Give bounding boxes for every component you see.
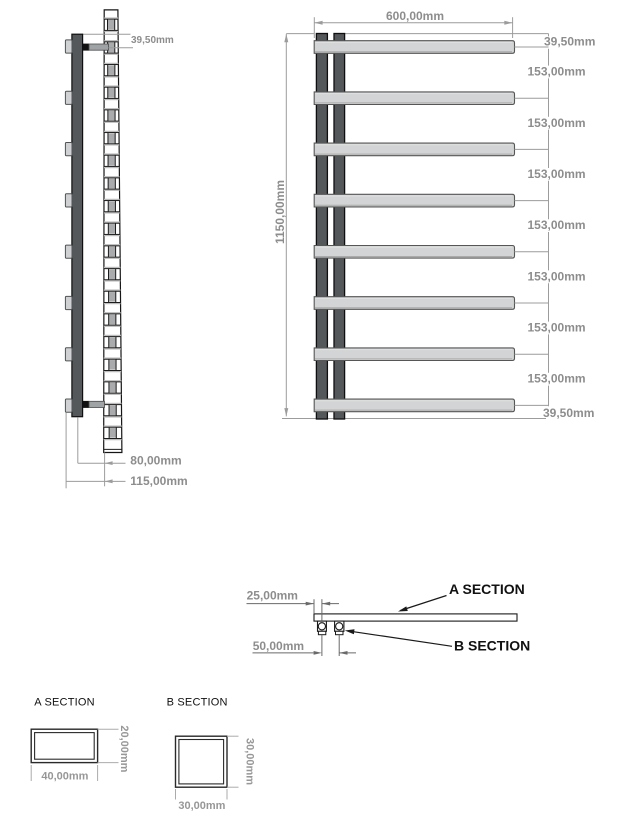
svg-text:153,00mm: 153,00mm (528, 116, 586, 130)
svg-text:39,50mm: 39,50mm (543, 406, 594, 420)
svg-text:153,00mm: 153,00mm (528, 269, 586, 283)
svg-text:39,50mm: 39,50mm (544, 35, 595, 49)
svg-text:30,00mm: 30,00mm (244, 738, 256, 785)
svg-text:153,00mm: 153,00mm (528, 372, 586, 386)
svg-text:153,00mm: 153,00mm (528, 218, 586, 232)
svg-text:A SECTION: A SECTION (34, 696, 94, 708)
svg-text:39,50mm: 39,50mm (131, 35, 174, 46)
svg-text:B SECTION: B SECTION (454, 638, 530, 654)
svg-text:153,00mm: 153,00mm (528, 320, 586, 334)
svg-text:A SECTION: A SECTION (449, 581, 525, 597)
svg-text:80,00mm: 80,00mm (130, 453, 181, 467)
svg-text:153,00mm: 153,00mm (528, 65, 586, 79)
svg-text:25,00mm: 25,00mm (247, 588, 298, 602)
svg-text:50,00mm: 50,00mm (253, 639, 304, 653)
svg-text:B SECTION: B SECTION (167, 697, 228, 709)
svg-text:115,00mm: 115,00mm (130, 474, 187, 488)
svg-text:40,00mm: 40,00mm (41, 771, 88, 783)
svg-text:1150,00mm: 1150,00mm (273, 180, 287, 244)
svg-text:30,00mm: 30,00mm (178, 800, 225, 812)
svg-text:20,00mm: 20,00mm (118, 725, 130, 772)
svg-text:600,00mm: 600,00mm (386, 9, 444, 23)
svg-text:153,00mm: 153,00mm (528, 167, 586, 181)
